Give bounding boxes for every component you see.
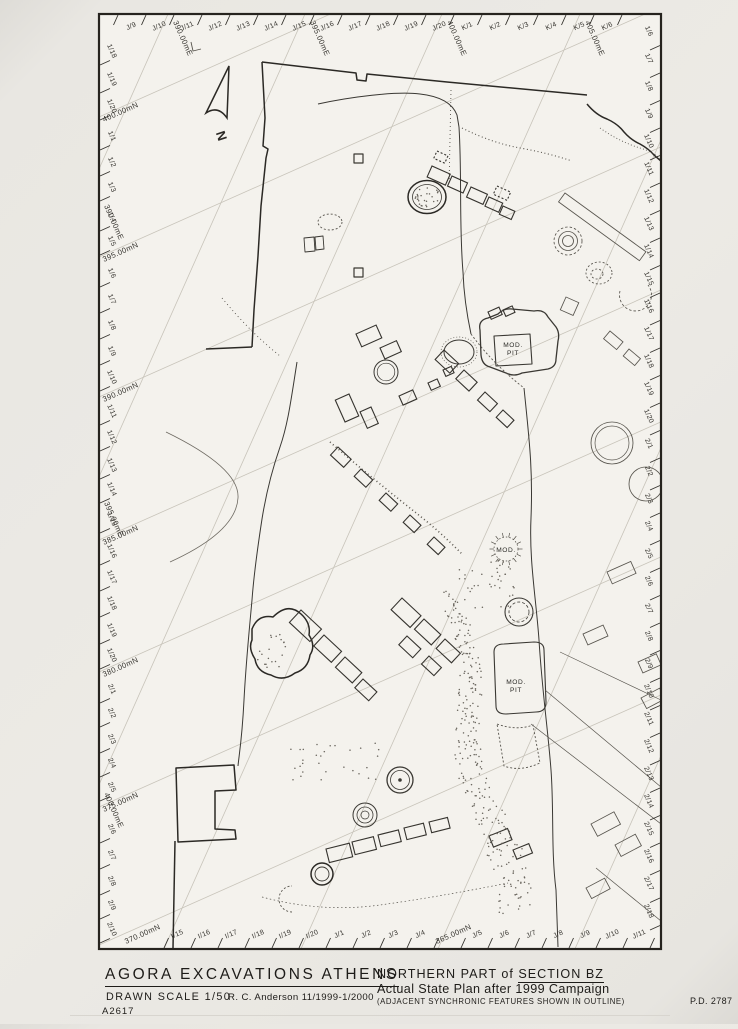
plan-title-prefix: NORTHERN PART of — [377, 967, 518, 981]
plan-note: (ADJACENT SYNCHRONIC FEATURES SHOWN IN O… — [377, 997, 625, 1006]
drawn-scale: DRAWN SCALE 1/50 — [106, 991, 231, 1003]
title-block: AGORA EXCAVATIONS ATHENS DRAWN SCALE 1/5… — [0, 0, 738, 1024]
scanned-plan-sheet: MOD. PIT MOD. MOD. PIT N J/9J/10J/11J/12… — [0, 0, 738, 1024]
plan-subtitle: Actual State Plan after 1999 Campaign — [377, 982, 610, 996]
plan-title-section: SECTION BZ — [518, 967, 604, 983]
author-credit: R. C. Anderson 11/1999-1/2000 — [228, 992, 374, 1003]
scan-crease — [70, 1015, 670, 1016]
agency-title: AGORA EXCAVATIONS ATHENS — [105, 966, 399, 987]
plan-title: NORTHERN PART of SECTION BZ — [377, 967, 604, 981]
pd-number: P.D. 2787 — [690, 996, 732, 1006]
